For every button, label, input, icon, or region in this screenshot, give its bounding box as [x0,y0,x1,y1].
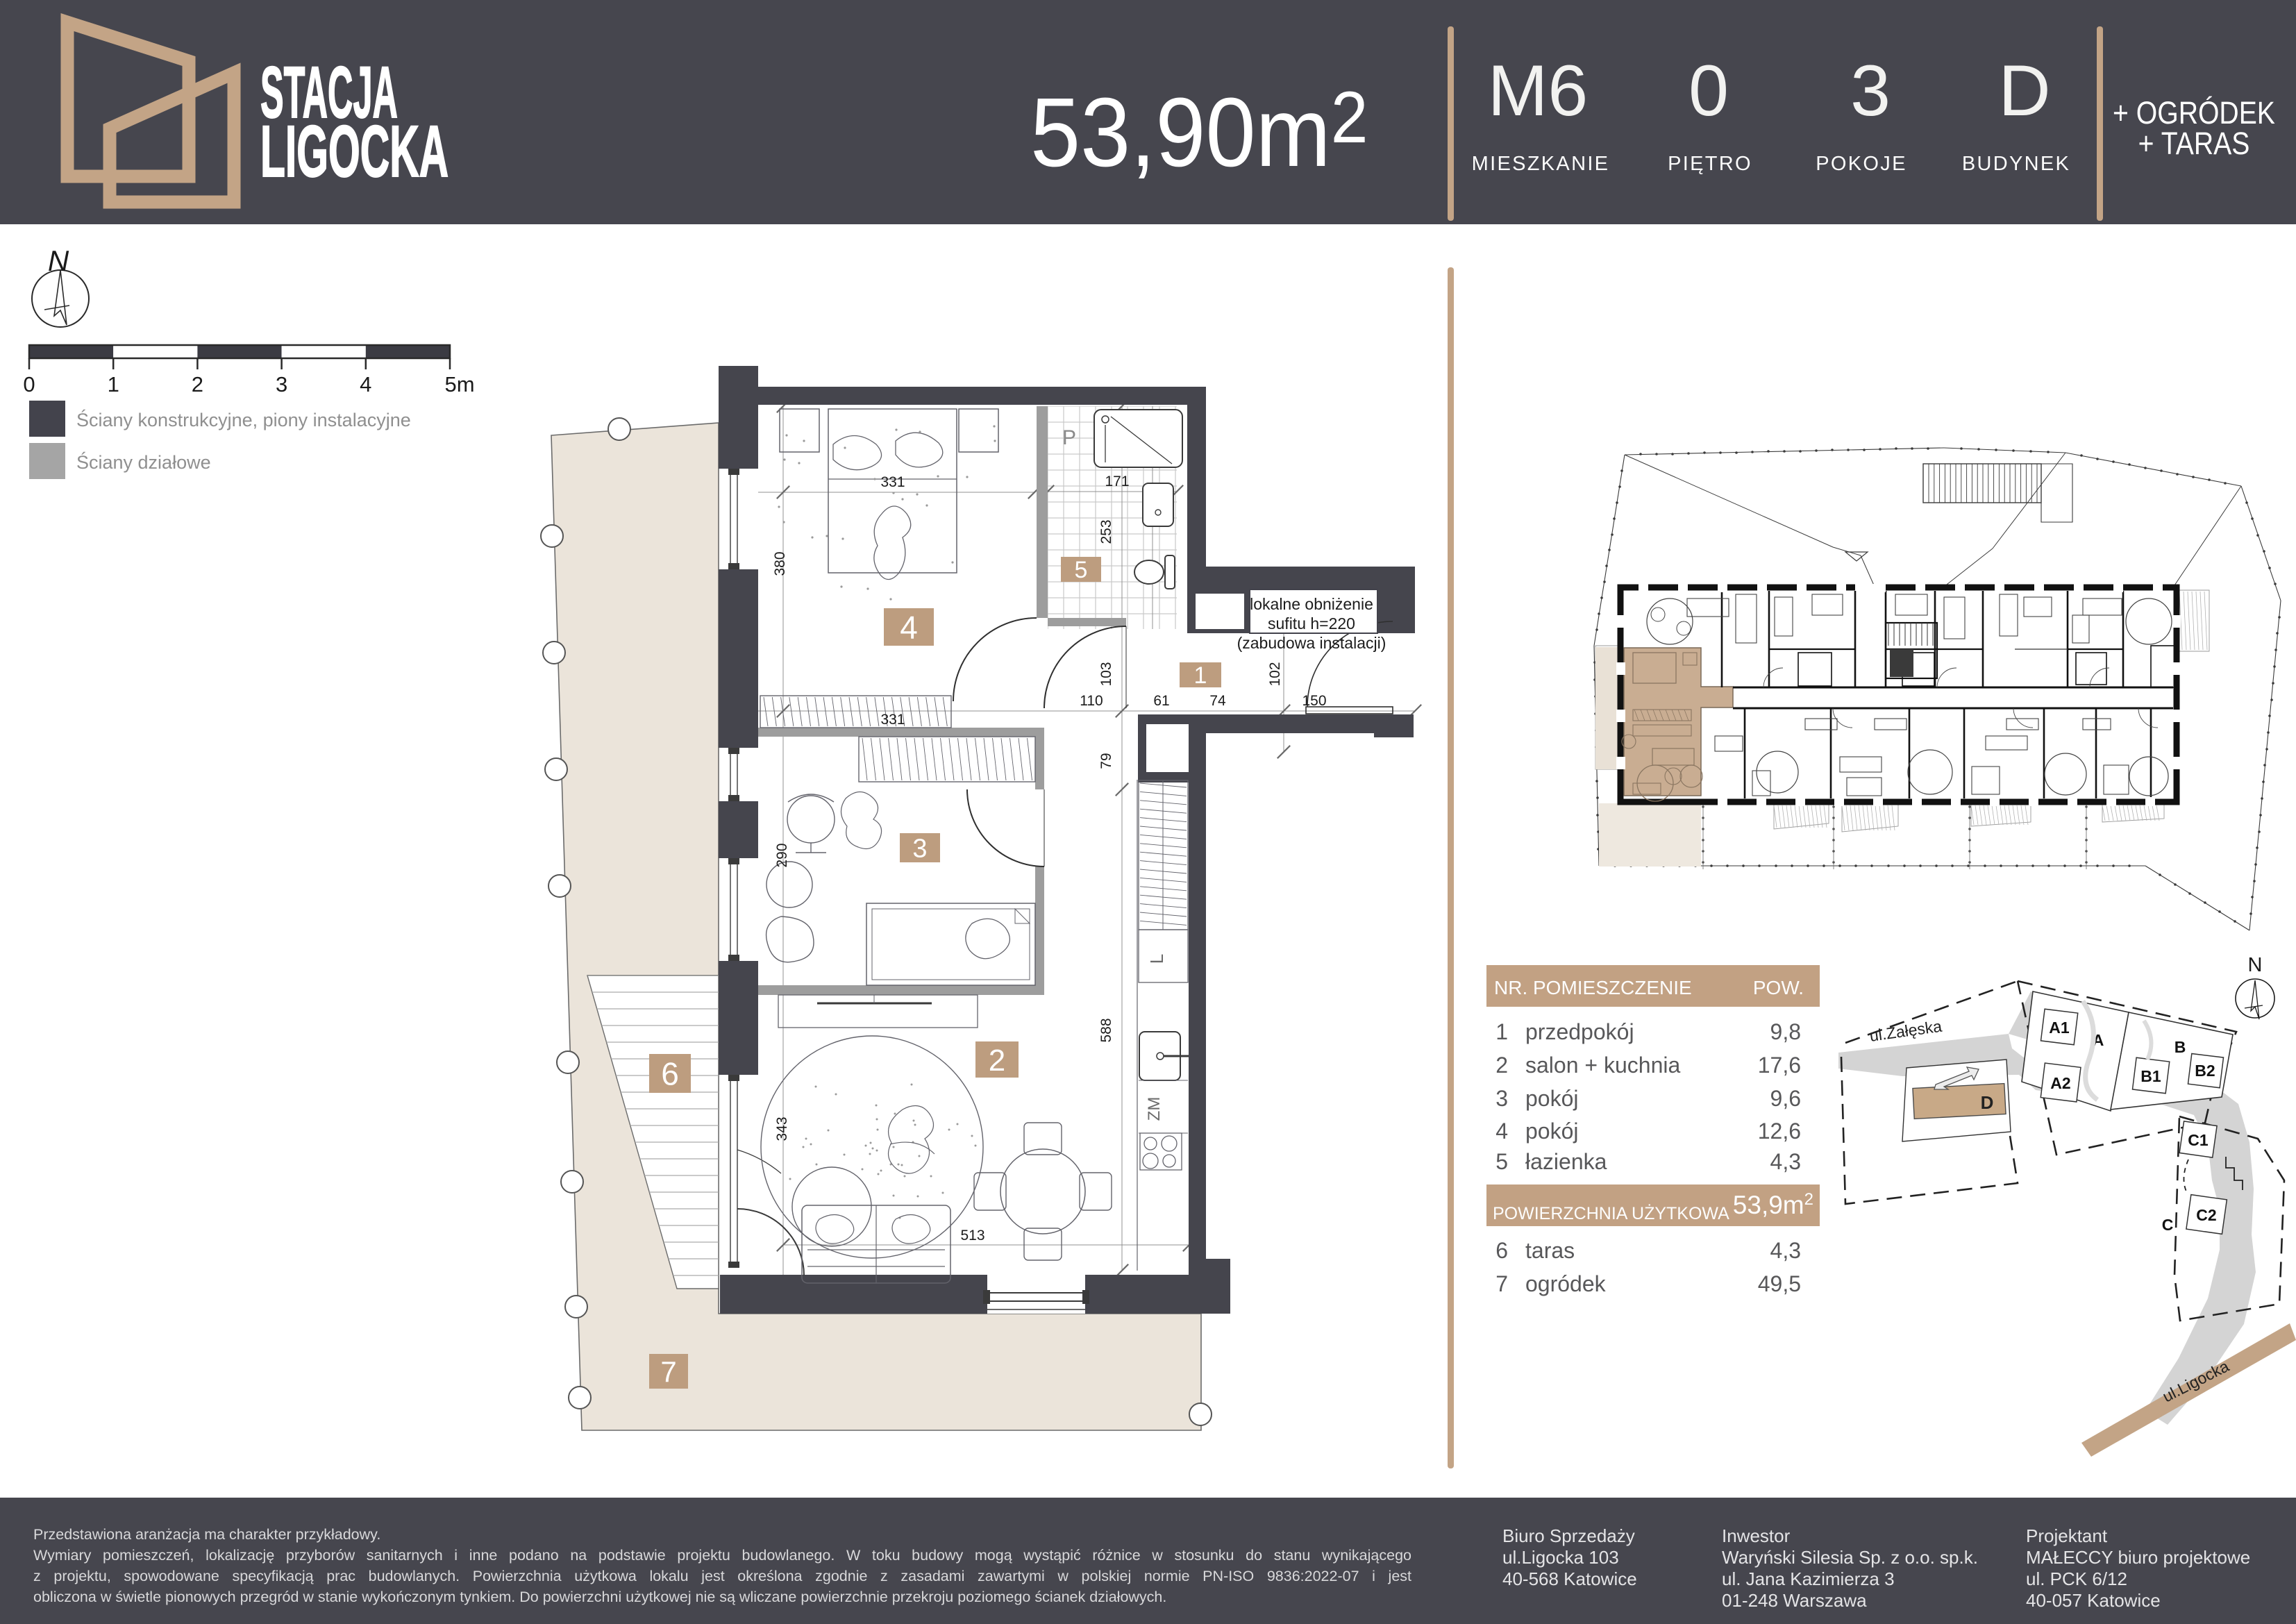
svg-text:4: 4 [900,610,918,646]
svg-text:C2: C2 [2196,1206,2216,1224]
svg-text:49,5: 49,5 [1758,1271,1801,1296]
svg-text:380: 380 [772,551,788,576]
svg-text:2: 2 [1495,1053,1508,1078]
svg-text:3: 3 [276,372,287,396]
svg-text:6: 6 [1495,1238,1508,1263]
svg-text:150: 150 [1302,693,1326,709]
svg-text:2: 2 [989,1044,1005,1078]
svg-text:513: 513 [960,1228,984,1244]
svg-text:6: 6 [661,1056,679,1092]
svg-text:N: N [2248,954,2263,976]
svg-text:A2: A2 [2050,1074,2070,1092]
svg-text:POW.: POW. [1753,977,1804,998]
svg-text:ul.Załęska: ul.Załęska [1868,1017,1943,1045]
svg-text:74: 74 [1209,693,1226,709]
svg-text:5: 5 [1495,1149,1508,1174]
svg-text:0: 0 [23,372,35,396]
svg-text:4,3: 4,3 [1770,1149,1801,1174]
svg-text:3: 3 [912,835,927,864]
svg-text:D: D [1981,1092,1994,1113]
svg-text:B: B [2175,1038,2186,1056]
svg-text:290: 290 [774,843,790,867]
svg-text:C: C [2162,1216,2174,1234]
svg-text:5: 5 [1075,557,1088,583]
svg-text:102: 102 [1267,662,1283,686]
svg-text:ZM: ZM [1145,1097,1164,1121]
svg-text:79: 79 [1098,753,1114,769]
svg-text:103: 103 [1098,662,1114,686]
svg-text:5m: 5m [444,372,474,396]
svg-text:53,9m2: 53,9m2 [1733,1190,1813,1219]
svg-text:7: 7 [660,1355,676,1388]
svg-text:B1: B1 [2140,1067,2161,1085]
svg-text:9,6: 9,6 [1770,1086,1801,1111]
svg-text:1: 1 [108,372,119,396]
svg-text:3: 3 [1495,1086,1508,1111]
svg-text:17,6: 17,6 [1758,1053,1801,1078]
svg-text:61: 61 [1153,693,1169,709]
svg-text:B2: B2 [2195,1062,2215,1080]
svg-text:4: 4 [360,372,371,396]
svg-text:pokój: pokój [1525,1119,1579,1144]
svg-text:331: 331 [880,474,905,490]
svg-text:pokój: pokój [1525,1086,1579,1111]
svg-text:253: 253 [1098,519,1114,544]
svg-text:taras: taras [1525,1238,1575,1263]
svg-text:POWIERZCHNIA UŻYTKOWA: POWIERZCHNIA UŻYTKOWA [1493,1203,1729,1223]
svg-text:110: 110 [1080,693,1103,709]
svg-text:588: 588 [1098,1018,1114,1042]
svg-text:C1: C1 [2188,1131,2209,1149]
svg-text:N: N [48,244,69,277]
svg-text:343: 343 [774,1116,790,1141]
svg-text:(zabudowa instalacji): (zabudowa instalacji) [1237,634,1386,652]
svg-text:171: 171 [1105,474,1129,489]
svg-text:1: 1 [1495,1019,1508,1044]
svg-text:9,8: 9,8 [1770,1019,1801,1044]
svg-text:L: L [1146,954,1167,964]
svg-text:12,6: 12,6 [1758,1119,1801,1144]
svg-text:salon + kuchnia: salon + kuchnia [1525,1053,1680,1078]
svg-text:A1: A1 [2049,1019,2070,1037]
svg-text:2: 2 [192,372,203,396]
svg-text:przedpokój: przedpokój [1525,1019,1634,1044]
svg-text:7: 7 [1495,1271,1508,1296]
svg-text:4,3: 4,3 [1770,1238,1801,1263]
svg-text:sufitu h=220: sufitu h=220 [1268,614,1355,633]
svg-text:P: P [1062,426,1076,449]
svg-text:ogródek: ogródek [1525,1271,1607,1296]
svg-text:Ściany konstrukcyjne, piony in: Ściany konstrukcyjne, piony instalacyjne [76,408,411,430]
svg-text:4: 4 [1495,1119,1508,1144]
svg-text:Ściany działowe: Ściany działowe [76,451,211,473]
svg-text:NR. POMIESZCZENIE: NR. POMIESZCZENIE [1494,977,1692,998]
svg-text:łazienka: łazienka [1525,1149,1607,1174]
svg-text:lokalne obniżenie: lokalne obniżenie [1250,595,1373,613]
svg-text:1: 1 [1194,662,1207,689]
svg-text:331: 331 [880,712,905,728]
